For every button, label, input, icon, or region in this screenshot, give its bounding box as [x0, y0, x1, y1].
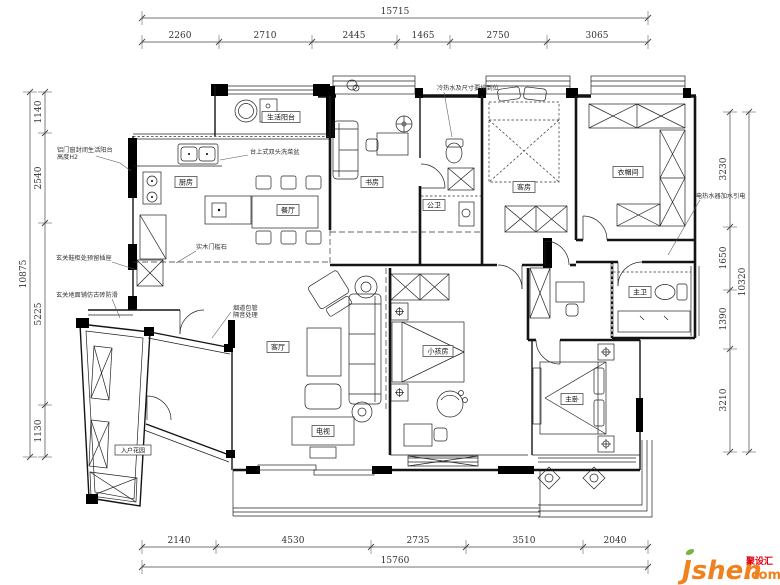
annotation-threshold: 实木门槛石	[196, 243, 227, 251]
dim-right-3: 1390	[719, 307, 729, 330]
dim-top-total: 15715	[381, 7, 410, 17]
label-dining: 餐厅	[277, 205, 299, 216]
master-bath-furniture	[613, 262, 691, 332]
dim-right-1: 3230	[719, 157, 729, 180]
annotation-entry-floor: 玄关地面铺仿古砖防滑	[56, 291, 118, 299]
kids-room-furniture	[391, 265, 522, 466]
svg-text:入户花园: 入户花园	[121, 446, 145, 454]
label-study: 书房	[361, 177, 383, 188]
label-master-bedroom: 主卧	[561, 394, 583, 405]
dim-left-4: 1130	[34, 419, 44, 442]
entry-corridor	[76, 318, 235, 506]
svg-text:餐厅: 餐厅	[281, 206, 295, 215]
svg-text:公卫: 公卫	[427, 202, 441, 210]
label-kids-room: 小孩房	[423, 346, 453, 357]
room-labels: 生活阳台 厨房 餐厅 书房 公卫 客房 衣帽间 主卫 客厅 小孩房 电视 主卧 …	[115, 112, 651, 456]
guest-room-furniture	[489, 87, 569, 265]
annotation-entry-cabinet: 玄关鞋柜处预留插座	[56, 254, 112, 262]
dim-left-3: 5225	[34, 302, 44, 325]
living-room-furniture	[292, 270, 381, 458]
label-guest-bath: 公卫	[423, 200, 445, 211]
dimension-chain-left: 10875 1140 2540 5225 1130	[19, 89, 52, 460]
floor-plan-drawing: 15715 2260 2710 2445 1465 2750 3065 2140…	[0, 0, 780, 585]
logo: Jsheh 聚设汇 .com	[677, 548, 780, 585]
dim-top-4: 1465	[412, 31, 435, 41]
dim-bottom-total: 15760	[381, 556, 410, 566]
dim-right-total: 10320	[738, 267, 748, 296]
floor-plan-page: 15715 2260 2710 2445 1465 2750 3065 2140…	[0, 0, 780, 585]
hall-furniture	[530, 268, 584, 318]
walls	[88, 76, 699, 517]
label-master-bath: 主卫	[629, 287, 651, 298]
label-tv: 电视	[312, 426, 334, 437]
label-guest-room: 客房	[513, 182, 535, 193]
dim-left-total: 10875	[19, 259, 29, 288]
label-living: 客厅	[267, 342, 289, 353]
logo-cn: 聚设汇	[745, 555, 773, 567]
annotation-balcony-door-1: 铝门窗封闭生活阳台	[57, 146, 113, 154]
dim-top-5: 2750	[487, 31, 510, 41]
annotation-balcony-door-2: 高度H2	[57, 153, 78, 161]
dim-bottom-4: 3510	[513, 536, 536, 546]
svg-text:衣帽间: 衣帽间	[618, 168, 639, 177]
svg-text:生活阳台: 生活阳台	[267, 113, 295, 122]
study-furniture	[333, 80, 412, 179]
annotation-duct-2: 隔音处理	[233, 311, 258, 319]
guest-bath-furniture	[421, 139, 481, 226]
dim-top-2: 2710	[254, 31, 277, 41]
dim-top-6: 3065	[586, 31, 609, 41]
svg-text:电视: 电视	[316, 427, 330, 436]
logo-tld: .com	[746, 568, 780, 583]
annotation-duct-1: 烟道包管	[233, 304, 258, 312]
annotation-sink: 台上式双头洗菜盆	[250, 148, 300, 156]
dim-right-2: 1650	[719, 246, 729, 269]
svg-text:厨房: 厨房	[179, 178, 193, 187]
dim-top-3: 2445	[343, 31, 366, 41]
dim-left-2: 2540	[34, 166, 44, 189]
dim-bottom-2: 4530	[282, 536, 305, 546]
annotation-hot-cold-water: 冷热水及尺寸要排到位	[437, 84, 499, 92]
annotation-water-heater: 电热水器加水引电	[696, 192, 746, 200]
label-service-balcony: 生活阳台	[262, 112, 300, 123]
kitchen-furniture	[133, 144, 251, 286]
label-cloakroom: 衣帽间	[613, 167, 643, 178]
dim-bottom-1: 2140	[168, 536, 191, 546]
svg-text:客房: 客房	[517, 183, 531, 192]
svg-text:主卫: 主卫	[633, 288, 647, 297]
svg-text:客厅: 客厅	[271, 343, 285, 352]
dimension-chain-bottom: 2140 4530 2735 3510 2040 15760	[139, 536, 651, 574]
dimension-chain-top: 15715 2260 2710 2445 1465 2750 3065	[139, 7, 651, 49]
dim-top-1: 2260	[169, 31, 192, 41]
label-kitchen: 厨房	[175, 177, 197, 188]
label-entry-garden: 入户花园	[115, 445, 151, 455]
svg-text:小孩房: 小孩房	[428, 347, 449, 356]
dim-right-4: 3210	[719, 388, 729, 411]
dim-bottom-3: 2735	[407, 536, 430, 546]
dim-left-1: 1140	[34, 100, 44, 123]
svg-text:主卧: 主卧	[565, 395, 579, 404]
dim-bottom-5: 2040	[604, 536, 627, 546]
dimension-chain-right: 3230 1650 1390 3210 10320	[719, 109, 756, 455]
svg-text:书房: 书房	[365, 178, 379, 187]
